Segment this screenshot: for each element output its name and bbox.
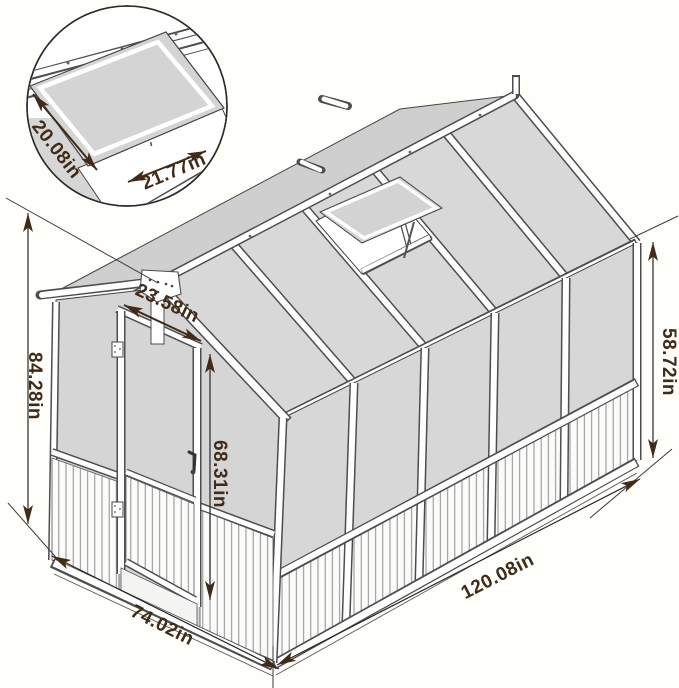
dimension-label-door-height: 68.31in [209, 440, 230, 508]
dimension-label-overall-height: 84.28in [24, 352, 45, 420]
diagram-svg: 84.28in 74.02in 120.08in 58.72in 68.31in [0, 0, 679, 688]
greenhouse-dimension-diagram: 84.28in 74.02in 120.08in 58.72in 68.31in [0, 0, 679, 688]
dimension-label-side-wall-height: 58.72in [658, 328, 679, 396]
